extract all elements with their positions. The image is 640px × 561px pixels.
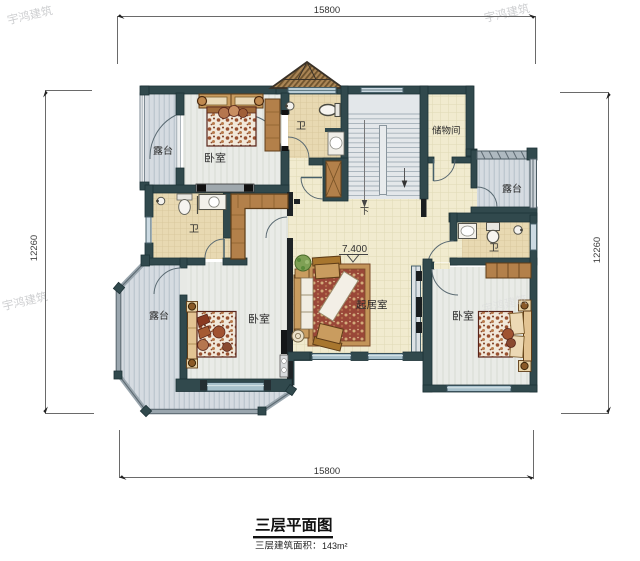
svg-text:12260: 12260: [592, 237, 603, 263]
svg-text:7.400: 7.400: [342, 244, 367, 255]
svg-text:143m²: 143m²: [322, 541, 348, 551]
svg-text:15800: 15800: [314, 5, 340, 16]
svg-text:15800: 15800: [314, 466, 340, 477]
svg-text:12260: 12260: [29, 235, 40, 261]
